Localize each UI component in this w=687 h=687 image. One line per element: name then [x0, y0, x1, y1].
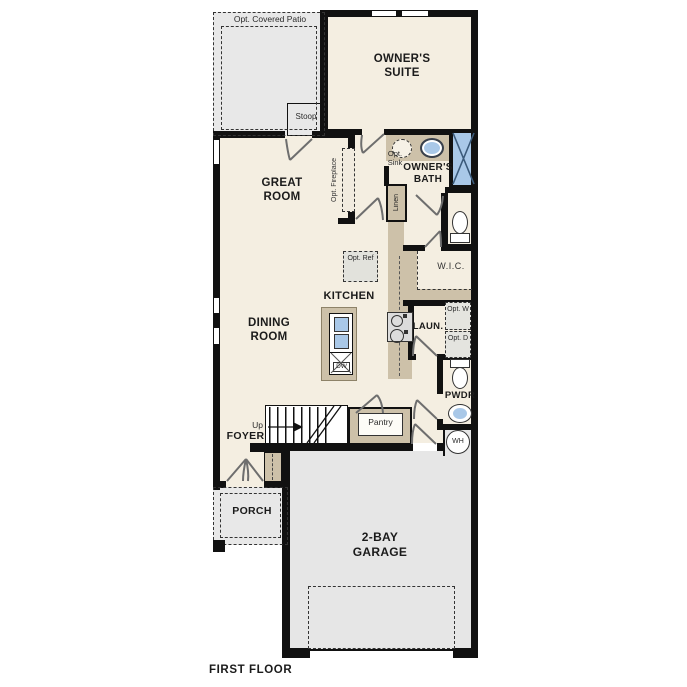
- first-floor-caption: FIRST FLOOR: [209, 663, 319, 677]
- floor-plan-canvas: Opt. Covered Patio Stoop OWNER'S SUITE O…: [0, 0, 687, 687]
- wall: [471, 10, 478, 658]
- great-room-label: GREAT ROOM: [242, 176, 322, 204]
- stoop-label: Stoop: [289, 112, 323, 121]
- island-sink-basin: [334, 317, 349, 332]
- wall: [384, 166, 389, 186]
- island-sink-basin: [334, 334, 349, 349]
- pantry-label: Pantry: [358, 418, 403, 428]
- cooktop-burner: [391, 315, 403, 327]
- laundry-label: LAUN.: [410, 321, 446, 333]
- opt-dryer-label: Opt. D: [447, 335, 469, 343]
- cooktop-knob: [404, 330, 408, 334]
- stair-treads: [269, 407, 333, 444]
- wall: [441, 193, 448, 250]
- water-heater-label: WH: [446, 438, 470, 446]
- wall: [445, 187, 478, 193]
- garage-label: 2-BAY GARAGE: [338, 530, 422, 559]
- dishwasher-label: DW: [333, 363, 350, 370]
- wall: [282, 443, 413, 451]
- window: [213, 328, 220, 344]
- cooktop-burner: [390, 329, 404, 343]
- dining-room-label: DINING ROOM: [228, 316, 310, 344]
- bath-sink-basin: [420, 138, 444, 158]
- porch-label: PORCH: [229, 505, 275, 518]
- wall: [408, 354, 416, 360]
- bath-toilet-tank: [450, 233, 470, 243]
- wall: [282, 648, 310, 658]
- optional-fireplace-box: [342, 148, 355, 212]
- owners-bath-label: OWNER'S BATH: [397, 162, 459, 186]
- kitchen-label: KITCHEN: [320, 290, 378, 303]
- owners-suite-label: OWNER'S SUITE: [362, 52, 442, 80]
- garage-door-outline: [308, 586, 455, 649]
- hall-cabinet-strip: [388, 222, 404, 254]
- linen-label: Linen: [387, 185, 406, 221]
- opt-ref-label: Opt. Ref: [346, 255, 375, 263]
- cooktop-knob: [403, 314, 407, 318]
- window: [213, 298, 220, 313]
- wall: [338, 218, 355, 224]
- powder-label: PWDR: [441, 390, 479, 402]
- opt-fireplace-label: Opt. Fireplace: [328, 146, 340, 214]
- wall: [441, 244, 478, 251]
- porch-post: [213, 540, 225, 552]
- patio-label: Opt. Covered Patio: [226, 15, 314, 25]
- powder-sink-basin: [453, 408, 467, 419]
- foyer-closet-rod-line: [272, 454, 274, 480]
- bath-door-gap-floor: [362, 129, 384, 135]
- opt-washer-label: Opt. W: [447, 306, 469, 314]
- wall: [282, 445, 290, 658]
- powder-toilet-bowl: [452, 367, 468, 389]
- window: [372, 10, 396, 17]
- wall: [384, 129, 450, 135]
- wall: [310, 649, 453, 651]
- window: [213, 140, 220, 164]
- bath-toilet-bowl: [452, 211, 468, 234]
- foyer-label: FOYER: [223, 430, 268, 443]
- wall: [453, 648, 478, 658]
- wic-label: W.I.C.: [430, 261, 472, 271]
- window: [402, 10, 428, 17]
- wall: [323, 10, 372, 17]
- wall: [437, 354, 443, 394]
